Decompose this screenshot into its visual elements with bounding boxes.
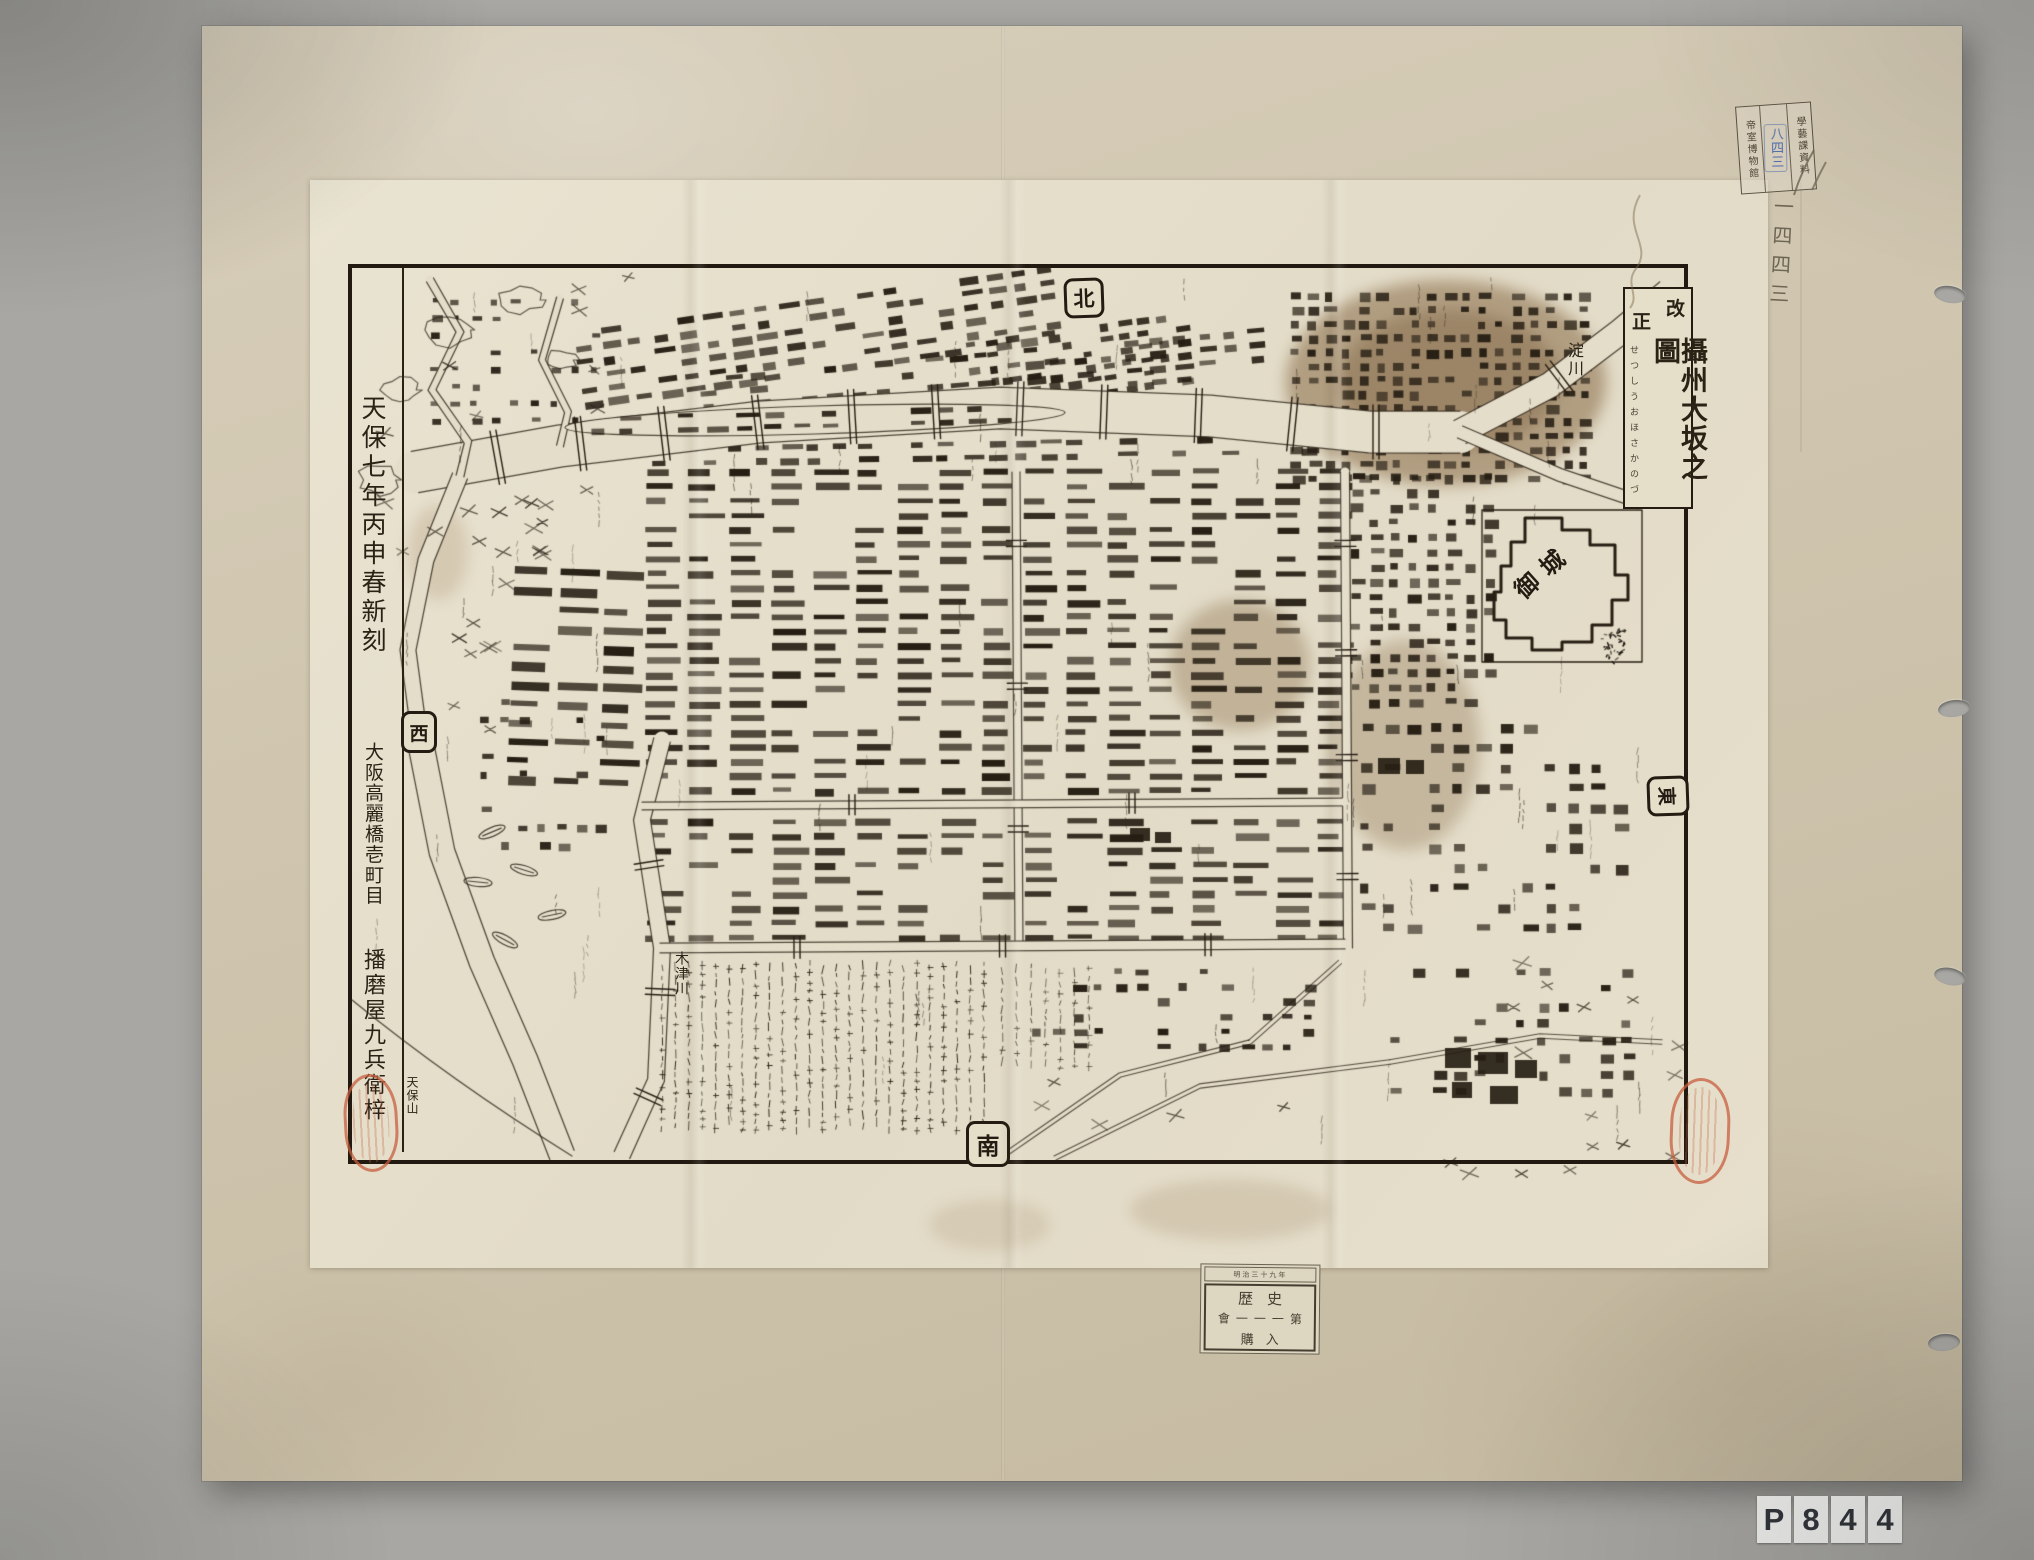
accession-row1: 歴史 xyxy=(1224,1287,1296,1309)
direction-north: 北 xyxy=(1063,277,1104,318)
red-seal-strokes xyxy=(1677,1086,1722,1175)
red-seal-strokes xyxy=(351,1082,391,1164)
plate-char: 4 xyxy=(1831,1496,1865,1543)
plate-char: 8 xyxy=(1794,1496,1828,1543)
margin-divider-line xyxy=(402,268,404,1152)
accession-row2: 會一一一第 xyxy=(1212,1309,1308,1327)
title-header-char1: 改 xyxy=(1666,294,1685,321)
scan-photo: 天保七年丙申春新刻 大阪高麗橋壱町目 播磨屋九兵衛梓 改 正 攝州大坂之圖 せつ… xyxy=(0,0,2034,1560)
map-sheet: 天保七年丙申春新刻 大阪高麗橋壱町目 播磨屋九兵衛梓 改 正 攝州大坂之圖 せつ… xyxy=(310,180,1768,1268)
map-border-frame xyxy=(348,264,1688,1164)
yodo-river-label: 淀川 xyxy=(1566,342,1582,378)
accession-stamp: 明治三十九年 歴史 會一一一第 購入 xyxy=(1200,1263,1321,1354)
pencil-number: 一四四三 xyxy=(1763,195,1798,312)
kizu-river-label: 木津川 xyxy=(674,951,688,996)
accession-row3: 購入 xyxy=(1229,1328,1291,1348)
colophon-date: 天保七年丙申春新刻 xyxy=(360,395,385,656)
accession-stamp-box: 歴史 會一一一第 購入 xyxy=(1204,1283,1317,1351)
accession-stamp-strip: 明治三十九年 xyxy=(1204,1266,1316,1282)
tenpozan-label: 天保山 xyxy=(406,1076,418,1115)
direction-east: 東 xyxy=(1646,775,1689,816)
museum-label: 帝室博物館 八四三 學藝課資料 xyxy=(1735,101,1817,194)
map-title-furigana: せつしうおほさかのづ xyxy=(1628,345,1637,500)
backing-paper-edge xyxy=(1800,182,1802,452)
plate-char: P xyxy=(1757,1496,1791,1543)
museum-label-right-column: 學藝課資料 xyxy=(1787,103,1816,190)
colophon-address: 大阪高麗橋壱町目 xyxy=(363,742,382,906)
direction-west: 西 xyxy=(401,711,437,753)
map-title: 攝州大坂之圖 xyxy=(1651,337,1705,507)
title-cartouche: 改 正 攝州大坂之圖 せつしうおほさかのづ xyxy=(1623,287,1693,509)
plate-char: 4 xyxy=(1868,1496,1902,1543)
plate-number: P 8 4 4 xyxy=(1757,1496,1902,1543)
title-header-char2: 正 xyxy=(1632,307,1651,334)
direction-south: 南 xyxy=(966,1121,1010,1167)
blue-number-stamp: 八四三 xyxy=(1764,124,1788,172)
